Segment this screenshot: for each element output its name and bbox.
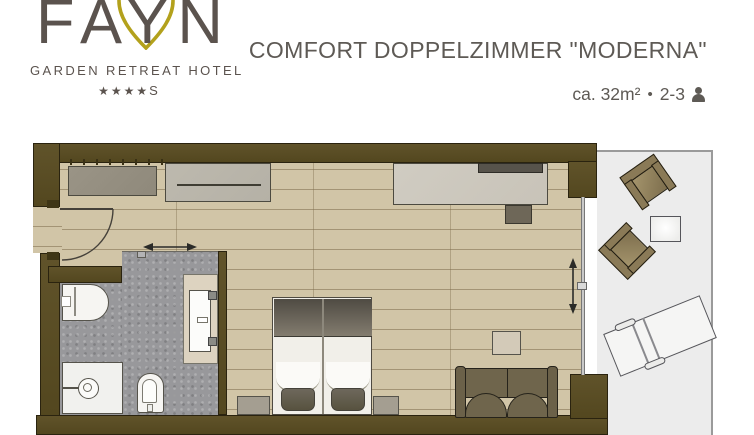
vanity-fitting-bottom	[208, 337, 217, 346]
nightstand-left	[237, 396, 270, 415]
bathroom-sliding-door-arrow	[143, 241, 197, 253]
closet-ticks	[70, 159, 165, 165]
bed-blanket	[274, 299, 322, 337]
bed-center-gap	[322, 299, 324, 414]
bathroom-door-notch	[137, 251, 146, 258]
closet-rail-unit	[165, 163, 271, 202]
wardrobe	[68, 166, 157, 196]
sofa-armrest-left	[455, 366, 466, 418]
shower-drain	[83, 383, 92, 392]
sofa-armrest-right	[547, 366, 558, 418]
shower-head	[78, 378, 99, 399]
wall-bottom	[36, 415, 608, 435]
tv	[478, 163, 543, 173]
sofa-seat-divider	[507, 368, 508, 398]
sofa-side-table	[492, 331, 521, 355]
toilet-cistern-line	[74, 287, 76, 316]
wc	[137, 373, 164, 413]
wc-bowl	[142, 379, 157, 403]
stool	[505, 205, 532, 224]
washbasin-vanity	[183, 274, 218, 364]
double-bed	[272, 297, 372, 415]
page: { "header": { "logo": { "brand": "FAYN",…	[0, 0, 754, 435]
bed-half-left	[274, 299, 322, 414]
wall-pillar-bottom-right	[570, 374, 608, 419]
balcony-sliding-door-arrow	[567, 258, 579, 314]
entrance-door	[58, 204, 116, 262]
bathroom-wall-right	[218, 251, 227, 415]
bed-blanket	[324, 299, 372, 337]
basin-tap	[197, 317, 208, 323]
wc-drain	[147, 404, 153, 412]
closet-rail	[177, 184, 261, 186]
wall-pillar-top-right	[568, 161, 597, 198]
bed-pillow	[331, 388, 365, 411]
vanity-fitting-top	[208, 291, 217, 300]
wall-left-top-block	[33, 143, 60, 207]
toilet	[62, 284, 109, 321]
toilet-flush	[61, 296, 71, 307]
nightstand-right	[373, 396, 399, 415]
bathroom-wall-top	[48, 266, 122, 283]
balcony-table	[650, 216, 681, 242]
brand-name: FAYN	[30, 0, 226, 54]
bed-half-right	[324, 299, 372, 414]
floorplan	[0, 0, 754, 435]
sofa	[455, 366, 558, 418]
bed-pillow	[281, 388, 315, 411]
